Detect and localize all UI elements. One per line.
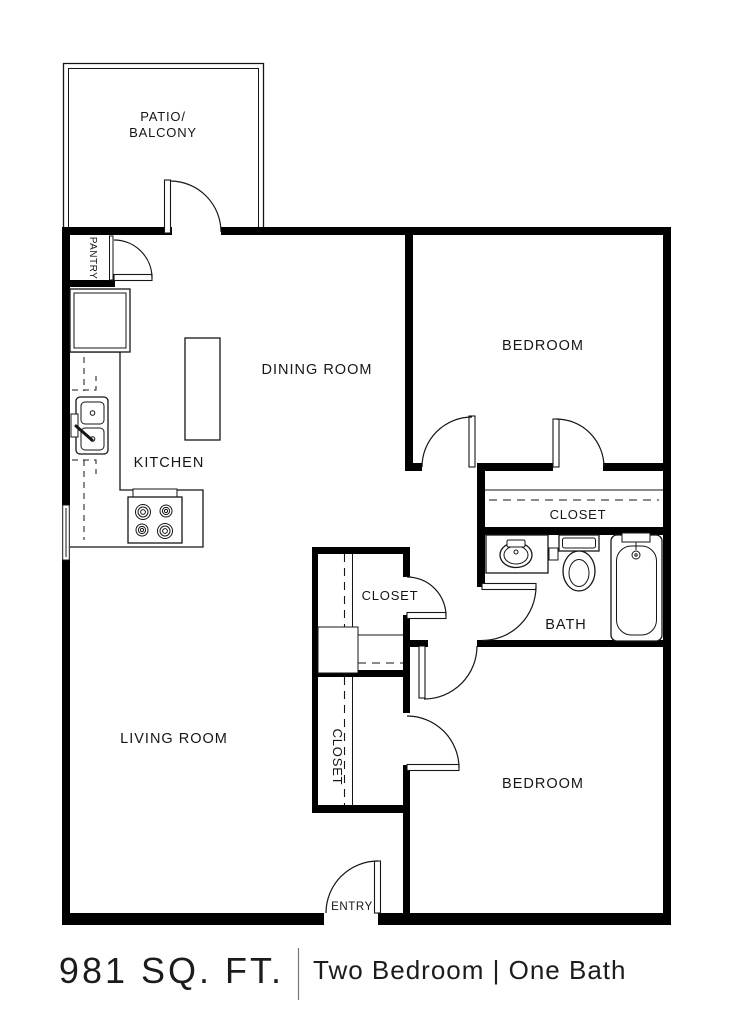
plan-description: Two Bedroom | One Bath [313, 955, 626, 985]
entry-label: ENTRY [331, 901, 373, 913]
hallcloset-unit-box [318, 627, 358, 673]
patio-door-swing [171, 181, 222, 232]
wall-lowercloset-south [312, 805, 410, 813]
patio-wall-inner [69, 69, 259, 228]
toilet [559, 535, 599, 591]
bedroom2-label: BEDROOM [502, 776, 584, 792]
bedroom1-label: BEDROOM [502, 338, 584, 354]
patio-door-leaf [165, 180, 171, 233]
pantry-jamb [110, 236, 114, 280]
wall-left-lower [62, 560, 70, 925]
bathtub-faucet [622, 533, 650, 542]
bath-label: BATH [545, 617, 587, 633]
wall-bedroom1-south-a [405, 463, 422, 471]
stove [128, 489, 182, 543]
bedroom2-door-swing [424, 646, 477, 699]
wall-top-left [62, 227, 172, 235]
kitchen: KITCHEN [70, 289, 204, 547]
pantry-door-leaf [114, 275, 152, 281]
vanity-faucet [507, 540, 525, 547]
toilet-bowl-inner [569, 560, 589, 587]
bedroom1-closet-door-leaf [553, 419, 559, 467]
dining-room: DINING ROOM [185, 338, 372, 440]
bedroom1-door-leaf [469, 416, 475, 467]
wall-top-right [221, 227, 671, 235]
toilet-paper-holder [549, 548, 558, 560]
bedroom1-closet-door-swing [556, 419, 604, 467]
closet2-door-swing [407, 716, 459, 768]
wall-closets-west [312, 547, 318, 813]
wall-closet1-west [477, 471, 485, 535]
closet2-label: CLOSET [330, 729, 345, 786]
refrigerator [70, 289, 130, 352]
living-room: LIVING ROOM [120, 731, 228, 747]
stove-ledge [133, 489, 177, 497]
bathtub [611, 533, 662, 641]
stove-body [128, 497, 182, 543]
patio-label-line1: PATIO/ [140, 109, 186, 124]
vanity [486, 535, 548, 573]
wall-right [663, 227, 671, 925]
bedroom-1: BEDROOM [422, 338, 604, 467]
hallcloset-label: CLOSET [362, 588, 419, 603]
closet1-label: CLOSET [550, 507, 607, 522]
kitchen-sink [71, 397, 108, 454]
dining-label: DINING ROOM [262, 362, 373, 378]
wall-left-upper [62, 227, 70, 505]
wall-closets-east-a [403, 554, 410, 577]
kitchen-window [62, 505, 70, 560]
bath-door-leaf [482, 584, 536, 590]
title-block: 981 SQ. FT. Two Bedroom | One Bath [59, 948, 627, 1000]
pantry-label: PANTRY [87, 237, 98, 280]
dining-table [185, 338, 220, 440]
bedroom2-door-leaf [419, 646, 425, 698]
entry: ENTRY [326, 861, 381, 913]
wall-pantry-south [62, 280, 115, 287]
toilet-tank-lid [563, 538, 596, 548]
floor-plan-page: PATIO/ BALCONY [0, 0, 733, 1024]
bedroom1-closet: CLOSET [485, 490, 663, 522]
wall-hallcloset-top [312, 547, 410, 554]
wall-bedroom1-south-c [603, 463, 664, 471]
patio-balcony: PATIO/ BALCONY [64, 64, 264, 228]
bath-door-swing [482, 587, 536, 641]
wall-bath-west [477, 535, 485, 587]
refrigerator-inner [74, 293, 126, 348]
wall-bottom-right [378, 913, 671, 925]
patio-label-line2: BALCONY [129, 125, 197, 140]
pantry: PANTRY [87, 236, 152, 281]
bathroom: BATH [482, 533, 662, 641]
hallcloset-door-leaf [407, 613, 446, 619]
wall-bottom-left [62, 913, 324, 925]
wall-bedroom1-south-b [477, 463, 553, 471]
patio-wall-outer [64, 64, 264, 228]
wall-bedroom1-west [405, 235, 413, 471]
kitchen-label: KITCHEN [134, 455, 205, 471]
closet2-door-leaf [407, 765, 459, 771]
patio-door [165, 180, 222, 233]
square-footage: 981 SQ. FT. [59, 950, 284, 991]
hall-closet: CLOSET [318, 554, 446, 673]
bedroom1-door-swing [422, 417, 472, 467]
wall-closets-east-c [403, 765, 410, 925]
living-label: LIVING ROOM [120, 731, 228, 747]
window-lines [62, 505, 70, 560]
floor-plan-drawing: PATIO/ BALCONY [0, 0, 733, 1024]
entry-door-leaf [375, 861, 381, 913]
sink-basin-top [81, 402, 104, 424]
pantry-door-swing [114, 240, 152, 278]
wall-closets-east-b [403, 615, 410, 713]
